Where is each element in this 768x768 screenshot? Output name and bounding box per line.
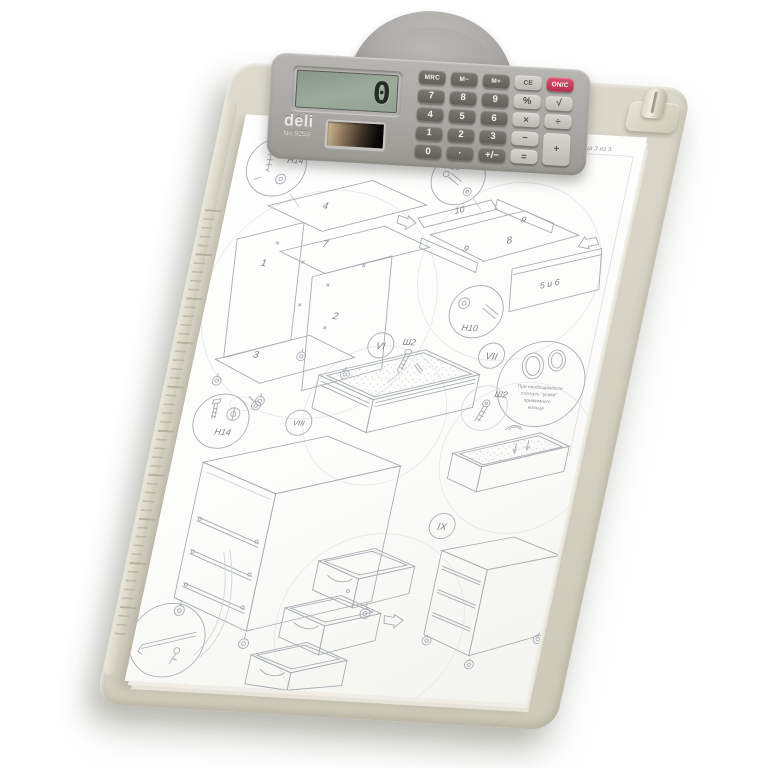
label-panel-2: 2 (331, 311, 340, 322)
note-line-2: отогнуть "усики" (520, 391, 558, 399)
key-onc[interactable]: ON/C (546, 77, 574, 93)
label-panel-4: 4 (321, 201, 329, 212)
key-9[interactable]: 9 (481, 92, 509, 108)
model-number: No.9259 (283, 130, 313, 139)
key-plusminus[interactable]: +/− (478, 147, 506, 163)
calculator-body: 0 deli No.9259 MRC M− M+ CE ON/C 7 8 9 %… (266, 52, 592, 176)
note-text: При необходимости отогнуть "усики" прижи… (513, 384, 564, 413)
key-3[interactable]: 3 (479, 129, 507, 145)
key-mrc[interactable]: MRC (418, 70, 446, 86)
brand-logo: deli (284, 113, 314, 131)
label-step-viii: VIII (292, 418, 306, 428)
key-5[interactable]: 5 (448, 108, 476, 124)
key-1[interactable]: 1 (415, 125, 443, 141)
note-line-3: прижимного (523, 399, 552, 406)
label-panel-9-left: 9 (461, 243, 470, 254)
key-decimal[interactable]: · (446, 145, 474, 161)
key-7[interactable]: 7 (417, 88, 445, 104)
lcd-display: 0 (295, 69, 399, 113)
clip-dome-dots (270, 50, 275, 55)
key-mminus[interactable]: M− (450, 71, 478, 87)
diagram-labels: H14 4 7 1 2 3 H10 10 9 8 9 5 и 6 H10 VI … (196, 151, 610, 538)
exploded-drawer-diagram (374, 149, 626, 344)
label-panel-3: 3 (252, 350, 260, 361)
key-multiply[interactable]: × (512, 112, 540, 128)
label-h10-bottom: H10 (461, 323, 479, 334)
step-vii-diagram (444, 337, 593, 496)
solar-panel (325, 119, 387, 150)
key-plus[interactable]: + (542, 132, 571, 166)
key-divide[interactable]: ÷ (544, 114, 572, 130)
label-panel-9-right: 9 (519, 214, 528, 225)
key-sqrt[interactable]: √ (545, 95, 573, 111)
step-ix-diagram (244, 504, 568, 704)
label-step-ix: IX (436, 522, 448, 533)
brand-block: deli No.9259 (283, 113, 314, 139)
key-mplus[interactable]: M+ (482, 73, 510, 89)
calculator-keypad: MRC M− M+ CE ON/C 7 8 9 % √ 4 5 6 × ÷ 1 … (414, 70, 574, 167)
label-panel-5-6: 5 и 6 (539, 277, 560, 291)
step-vi-diagram (307, 330, 487, 439)
label-panel-1: 1 (260, 258, 268, 269)
key-6[interactable]: 6 (480, 110, 508, 126)
label-panel-8: 8 (506, 235, 513, 247)
pen-holder (625, 87, 684, 133)
label-panel-7: 7 (321, 239, 329, 250)
label-step-vii: VII (484, 351, 499, 363)
product-photo-scene: Страница 3 из 3 (0, 0, 768, 768)
key-equals[interactable]: = (510, 149, 538, 165)
label-sh2-vi: Ш2 (402, 337, 417, 348)
key-4[interactable]: 4 (416, 106, 444, 122)
key-2[interactable]: 2 (447, 127, 475, 143)
label-panel-10: 10 (454, 204, 465, 216)
key-8[interactable]: 8 (449, 90, 477, 106)
key-minus[interactable]: − (511, 130, 539, 146)
label-step-vi: VI (375, 341, 387, 352)
lcd-bezel: 0 (291, 65, 403, 117)
calculator-clip: 0 deli No.9259 MRC M− M+ CE ON/C 7 8 9 %… (266, 52, 592, 176)
key-percent[interactable]: % (513, 94, 541, 110)
note-line-4: кольца (527, 406, 544, 412)
label-sh2-vii: Ш2 (494, 389, 509, 400)
key-ce[interactable]: CE (514, 75, 542, 91)
label-h14-bottom: H14 (213, 427, 231, 438)
key-0[interactable]: 0 (414, 143, 442, 159)
